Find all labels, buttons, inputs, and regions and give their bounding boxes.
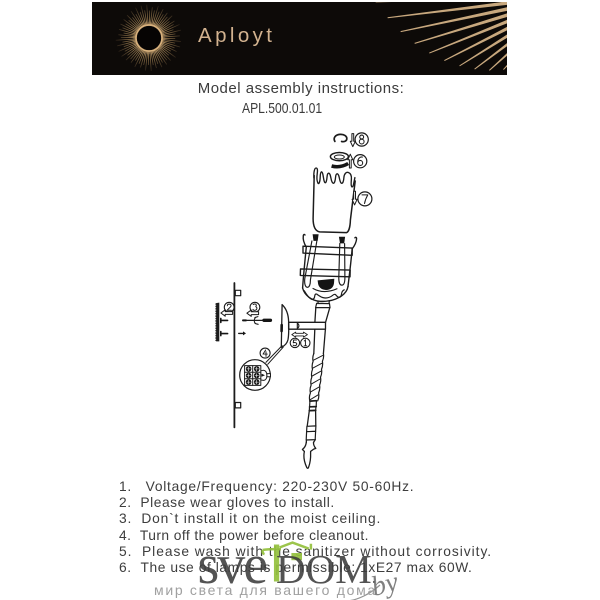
svg-text:мир света для вашего дома: мир света для вашего дома: [154, 582, 377, 598]
